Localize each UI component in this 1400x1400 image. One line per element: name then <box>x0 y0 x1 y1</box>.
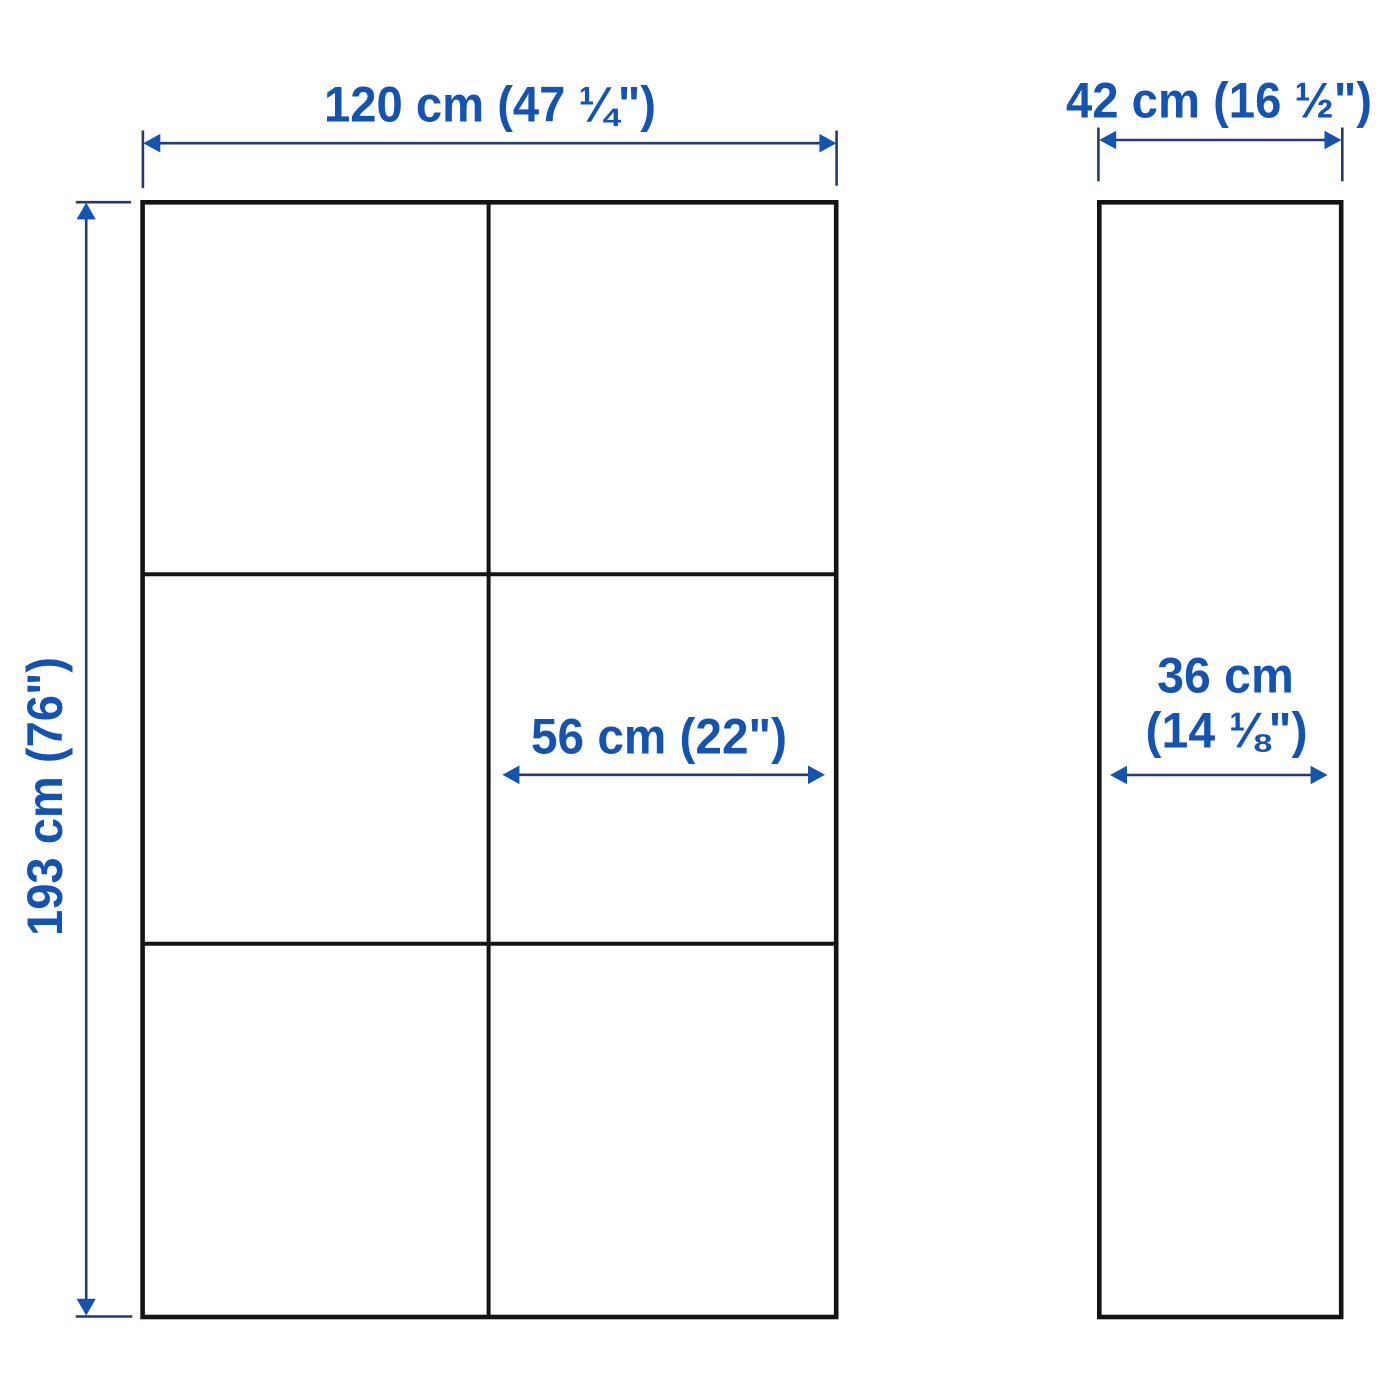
svg-text:42 cm (16 ½"): 42 cm (16 ½") <box>1066 72 1372 128</box>
svg-text:36 cm: 36 cm <box>1157 648 1294 704</box>
svg-text:120 cm (47 ¼"): 120 cm (47 ¼") <box>324 76 656 132</box>
svg-text:193 cm (76"): 193 cm (76") <box>17 657 73 936</box>
svg-text:(14 ⅛"): (14 ⅛") <box>1146 703 1308 759</box>
svg-text:56 cm (22"): 56 cm (22") <box>531 709 787 765</box>
